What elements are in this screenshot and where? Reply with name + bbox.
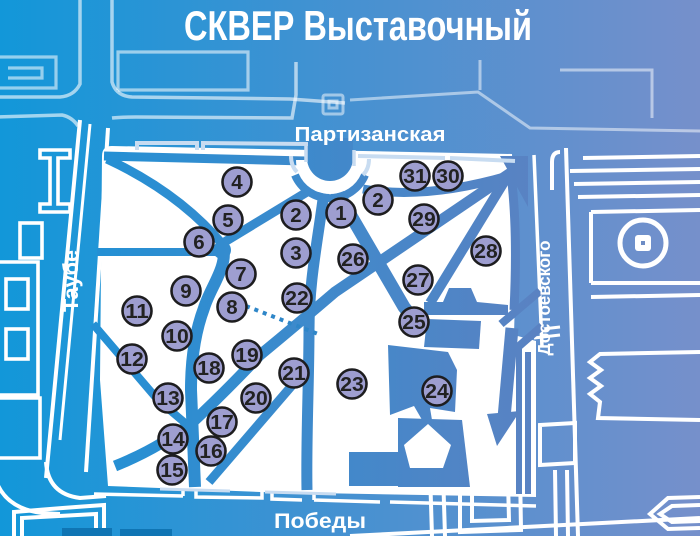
svg-text:9: 9 (180, 280, 191, 303)
svg-text:15: 15 (160, 459, 184, 482)
svg-text:4: 4 (231, 171, 243, 194)
svg-text:29: 29 (412, 208, 436, 231)
svg-text:Партизанская: Партизанская (295, 124, 446, 146)
svg-text:19: 19 (235, 344, 259, 367)
svg-text:16: 16 (199, 440, 223, 463)
svg-text:25: 25 (402, 311, 426, 334)
svg-text:28: 28 (474, 240, 498, 263)
svg-text:Таубе: Таубе (60, 250, 83, 312)
svg-text:2: 2 (290, 204, 301, 227)
svg-text:7: 7 (235, 263, 246, 286)
svg-text:27: 27 (406, 269, 430, 292)
svg-text:17: 17 (210, 411, 234, 434)
svg-text:26: 26 (341, 248, 365, 271)
svg-text:Победы: Победы (274, 510, 366, 533)
svg-text:23: 23 (340, 373, 364, 396)
svg-text:20: 20 (244, 387, 268, 410)
svg-text:Достоевского: Достоевского (534, 241, 554, 356)
svg-text:10: 10 (165, 325, 189, 348)
svg-text:12: 12 (120, 348, 144, 371)
svg-text:1: 1 (335, 202, 346, 225)
svg-text:СКВЕР Выставочный: СКВЕР Выставочный (184, 2, 532, 49)
svg-text:30: 30 (436, 165, 460, 188)
svg-text:21: 21 (282, 362, 306, 385)
svg-text:6: 6 (193, 231, 204, 254)
svg-text:2: 2 (372, 189, 383, 212)
svg-text:5: 5 (222, 209, 233, 232)
svg-text:14: 14 (161, 428, 185, 451)
svg-text:24: 24 (425, 380, 449, 403)
svg-text:11: 11 (125, 300, 149, 323)
svg-text:31: 31 (403, 165, 427, 188)
svg-text:22: 22 (285, 287, 309, 310)
svg-text:8: 8 (226, 296, 237, 319)
svg-text:13: 13 (156, 387, 180, 410)
svg-text:18: 18 (197, 357, 221, 380)
svg-text:3: 3 (290, 242, 301, 265)
